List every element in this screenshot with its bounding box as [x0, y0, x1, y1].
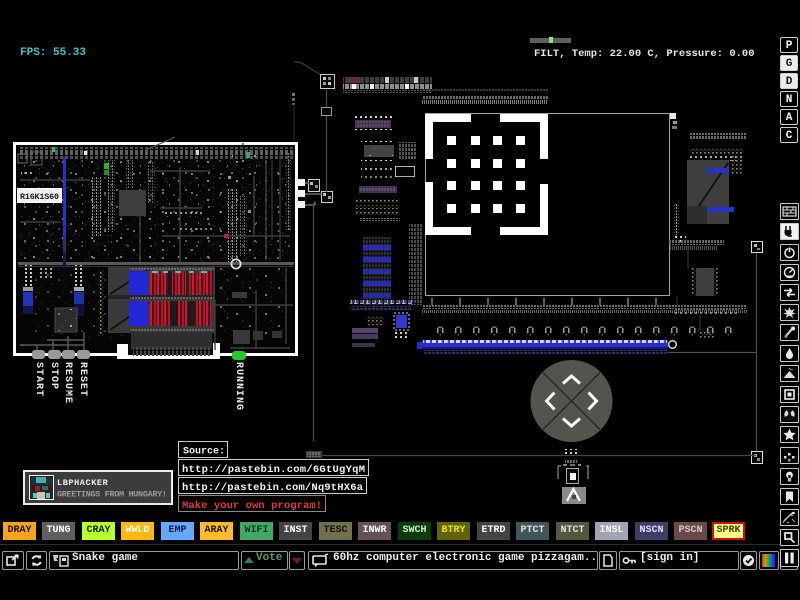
svg-text:LBPHACKER: LBPHACKER — [57, 478, 109, 488]
svg-text:GREETINGS FROM HUNGARY!: GREETINGS FROM HUNGARY! — [57, 490, 167, 500]
svg-text:Make your own program!: Make your own program! — [182, 500, 322, 512]
svg-text:http://pastebin.com/Nq9tHX6a: http://pastebin.com/Nq9tHX6a — [182, 482, 364, 494]
svg-text:Source:: Source: — [183, 447, 225, 458]
svg-text:R16K1S60: R16K1S60 — [20, 192, 59, 202]
svg-text:http://pastebin.com/6GtUgYqM: http://pastebin.com/6GtUgYqM — [182, 464, 365, 476]
